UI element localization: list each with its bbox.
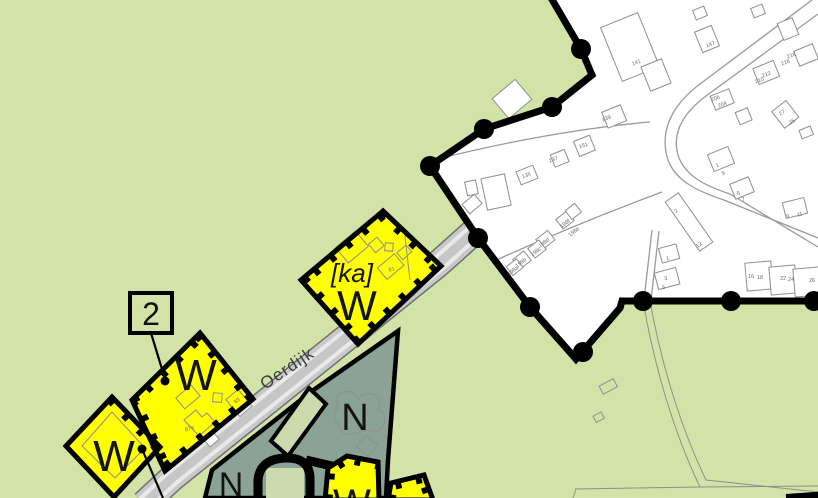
zone-label: W [175,351,217,400]
zone-label: N [341,397,368,439]
nature-pocket [266,468,304,498]
house-number: 26 [809,278,815,284]
house-number: 11 [796,212,803,219]
annotation-labels: [ka] [330,258,374,288]
zone-label: N [219,466,244,498]
zone-label: W [93,432,135,481]
house-number: 16 [748,274,754,280]
zone-label: W [333,482,371,498]
leader-dot [161,377,170,386]
house-number: 22 [780,276,786,282]
zone-label: W [393,493,425,498]
zone-label: W [337,282,377,329]
zoning-map-viewport[interactable]: 2 WWWWWNN [ka] Oerdijk 14114713915113713… [0,0,818,498]
leader-dot [138,445,147,454]
house-number: 18 [757,275,763,281]
zoning-map[interactable]: 2 WWWWWNN [ka] Oerdijk 14114713915113713… [0,0,818,498]
plan-ref-number: 2 [142,296,160,332]
house-number: 24 [788,277,794,283]
annotation-label: [ka] [330,258,374,288]
